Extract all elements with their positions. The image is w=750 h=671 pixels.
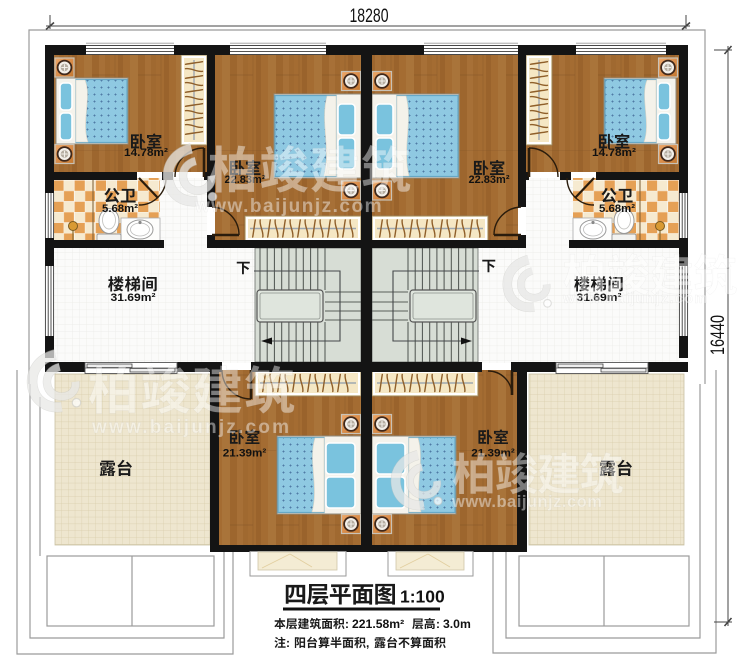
svg-text:5.68m²: 5.68m² — [599, 203, 635, 215]
svg-text:18280: 18280 — [350, 6, 389, 27]
svg-text:www.baijunjz.com: www.baijunjz.com — [194, 196, 383, 217]
svg-text:,: , — [366, 636, 369, 650]
svg-text:22.83m²: 22.83m² — [469, 174, 510, 186]
svg-text:31.69m²: 31.69m² — [111, 292, 156, 304]
svg-text:www.baijunjz.com: www.baijunjz.com — [562, 290, 708, 307]
svg-text:21.39m²: 21.39m² — [223, 448, 267, 460]
svg-text:1:100: 1:100 — [400, 587, 445, 607]
svg-text:14.78m²: 14.78m² — [592, 147, 636, 159]
svg-text:3.0m: 3.0m — [443, 617, 471, 631]
svg-text:www.baijunjz.com: www.baijunjz.com — [451, 493, 602, 511]
svg-text:221.58m²: 221.58m² — [352, 617, 404, 631]
svg-text::: : — [286, 636, 290, 650]
svg-text::: : — [345, 617, 349, 631]
svg-text:14.78m²: 14.78m² — [124, 147, 168, 159]
svg-text:5.68m²: 5.68m² — [102, 203, 138, 215]
svg-text:www.baijunjz.com: www.baijunjz.com — [91, 417, 291, 438]
svg-text::: : — [436, 617, 440, 631]
svg-text:16440: 16440 — [708, 315, 729, 355]
